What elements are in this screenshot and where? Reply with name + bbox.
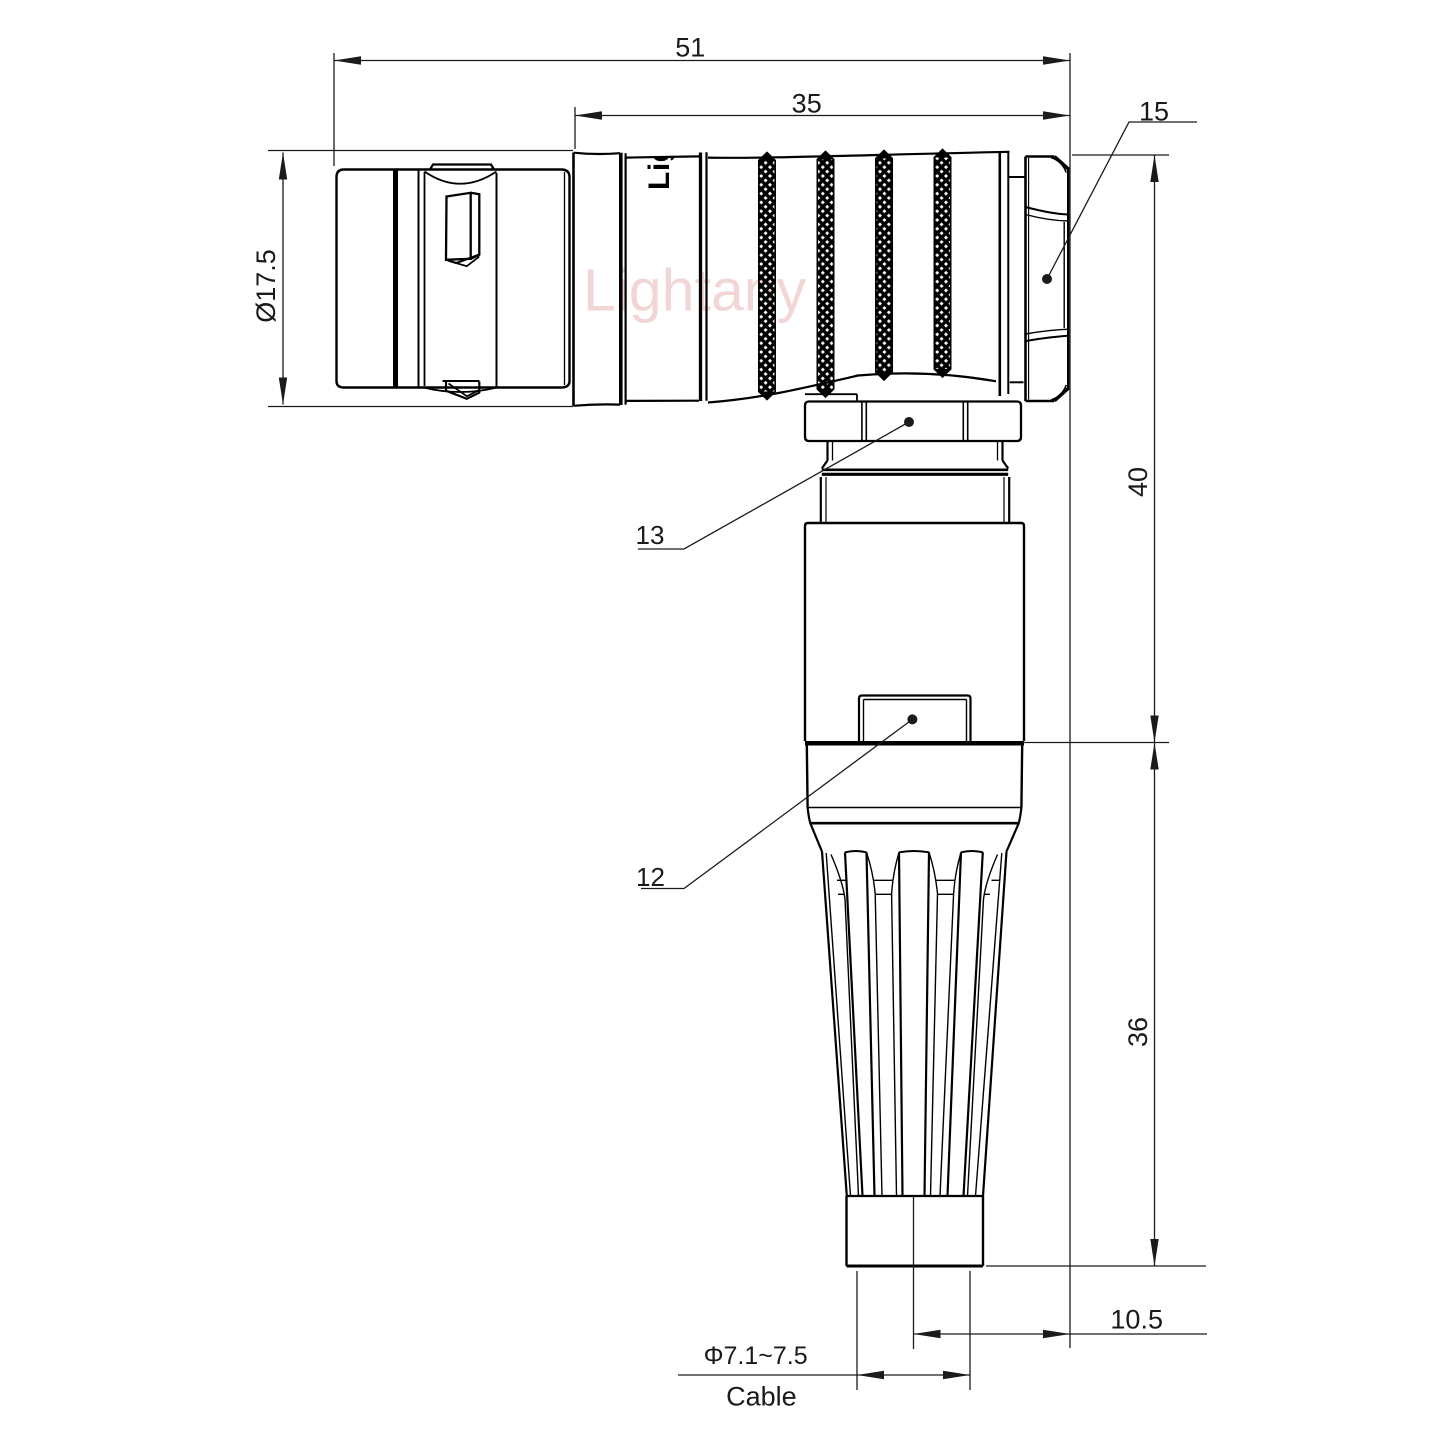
svg-text:Φ7.1~7.5: Φ7.1~7.5 xyxy=(704,1342,808,1370)
svg-text:15: 15 xyxy=(1139,97,1169,127)
svg-text:12: 12 xyxy=(636,862,665,892)
svg-text:35: 35 xyxy=(792,89,822,119)
svg-text:Ø17.5: Ø17.5 xyxy=(251,249,281,323)
svg-text:Cable: Cable xyxy=(726,1382,797,1412)
svg-text:36: 36 xyxy=(1123,1017,1153,1047)
svg-text:40: 40 xyxy=(1123,467,1153,497)
svg-text:51: 51 xyxy=(675,33,705,63)
svg-text:13: 13 xyxy=(636,520,665,550)
svg-text:Lig: Lig xyxy=(643,144,676,191)
svg-text:10.5: 10.5 xyxy=(1110,1305,1163,1335)
